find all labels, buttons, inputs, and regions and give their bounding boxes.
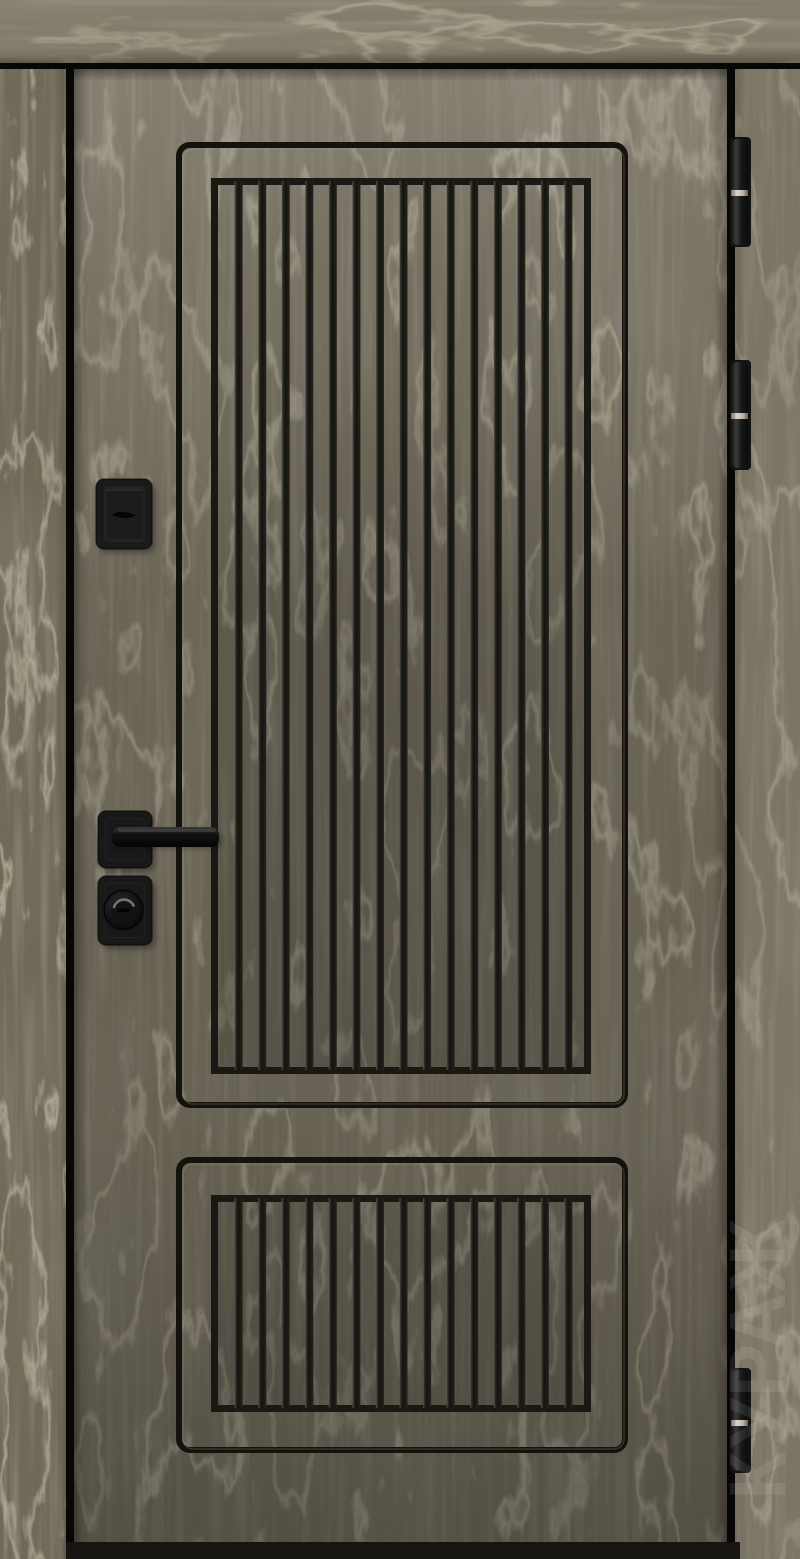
svg-text:КУРАЖ: КУРАЖ xyxy=(713,1218,800,1500)
